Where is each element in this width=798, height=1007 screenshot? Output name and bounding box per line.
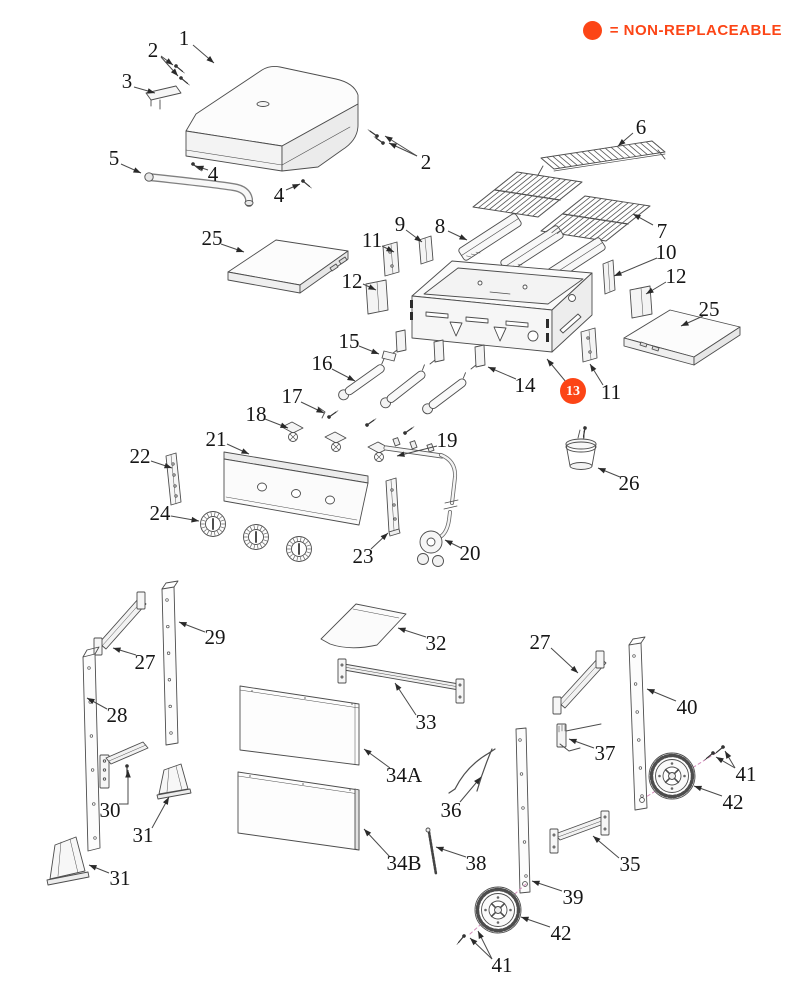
callout-20: 20 — [445, 540, 481, 565]
callout-28: 28 — [87, 698, 128, 727]
svg-text:21: 21 — [206, 427, 227, 451]
callout-26: 26 — [598, 468, 640, 495]
callout-32: 32 — [398, 628, 447, 655]
callout-9: 9 — [395, 212, 422, 242]
svg-text:3: 3 — [122, 69, 133, 93]
svg-text:41: 41 — [492, 953, 513, 977]
svg-text:42: 42 — [723, 790, 744, 814]
svg-text:1: 1 — [179, 26, 190, 50]
svg-text:38: 38 — [466, 851, 487, 875]
callout-19: 19 — [397, 428, 458, 457]
callout-31b: 31 — [89, 865, 131, 890]
svg-text:14: 14 — [515, 373, 537, 397]
callout-41a: 41 — [716, 751, 757, 786]
svg-text:35: 35 — [620, 852, 641, 876]
callout-16: 16 — [312, 351, 356, 381]
callout-14: 14 — [488, 367, 536, 397]
svg-text:31: 31 — [110, 866, 131, 890]
svg-text:4: 4 — [274, 183, 285, 207]
callout-27a: 27 — [113, 648, 156, 674]
callout-11a: 11 — [362, 228, 394, 252]
callout-11b: 11 — [590, 364, 621, 404]
svg-text:32: 32 — [426, 631, 447, 655]
svg-text:5: 5 — [109, 146, 120, 170]
svg-text:8: 8 — [435, 214, 446, 238]
legend: = NON-REPLACEABLE — [583, 21, 782, 40]
callout-2a: 2 — [148, 38, 178, 76]
svg-text:19: 19 — [437, 428, 458, 452]
svg-text:6: 6 — [636, 115, 647, 139]
svg-text:25: 25 — [202, 226, 223, 250]
callout-30: 30 — [100, 770, 131, 822]
callout-13: 13 — [547, 359, 586, 404]
callout-15: 15 — [339, 329, 380, 354]
callout-39: 39 — [532, 881, 584, 909]
callout-21: 21 — [206, 427, 250, 454]
svg-text:34A: 34A — [386, 763, 423, 787]
svg-text:28: 28 — [107, 703, 128, 727]
callout-7: 7 — [633, 214, 667, 243]
callout-25a: 25 — [202, 226, 245, 252]
svg-text:29: 29 — [205, 625, 226, 649]
callout-17: 17 — [282, 384, 325, 413]
svg-text:25: 25 — [699, 297, 720, 321]
callout-37: 37 — [569, 739, 616, 765]
callout-25b: 25 — [681, 297, 720, 326]
callout-12a: 12 — [342, 269, 377, 293]
svg-text:23: 23 — [353, 544, 374, 568]
svg-text:16: 16 — [312, 351, 333, 375]
svg-text:2: 2 — [148, 38, 159, 62]
callout-31a: 31 — [133, 797, 170, 847]
svg-text:15: 15 — [339, 329, 360, 353]
callout-2b: 2 — [385, 136, 431, 174]
svg-text:2: 2 — [421, 150, 432, 174]
exploded-parts-diagram: 1234452678910111212111314151617181920212… — [0, 0, 798, 1007]
svg-text:40: 40 — [677, 695, 698, 719]
callout-3: 3 — [122, 69, 155, 94]
svg-text:20: 20 — [460, 541, 481, 565]
svg-text:4: 4 — [208, 162, 219, 186]
callout-24: 24 — [150, 501, 200, 525]
callout-36: 36 — [441, 777, 482, 822]
callout-8: 8 — [435, 214, 467, 240]
callout-12b: 12 — [646, 264, 687, 294]
callout-22: 22 — [130, 444, 173, 468]
svg-text:33: 33 — [416, 710, 437, 734]
svg-text:27: 27 — [135, 650, 156, 674]
svg-text:24: 24 — [150, 501, 172, 525]
svg-text:34B: 34B — [386, 851, 421, 875]
non-replaceable-dot-icon — [583, 21, 602, 40]
svg-text:41: 41 — [736, 762, 757, 786]
callout-27b: 27 — [530, 630, 579, 673]
callout-35: 35 — [593, 836, 641, 876]
callout-layer: 1234452678910111212111314151617181920212… — [0, 0, 798, 1007]
callout-40: 40 — [647, 689, 698, 719]
callout-42b: 42 — [521, 917, 572, 945]
legend-text: = NON-REPLACEABLE — [610, 22, 782, 39]
callout-1: 1 — [179, 26, 214, 63]
svg-text:10: 10 — [656, 240, 677, 264]
svg-text:36: 36 — [441, 798, 462, 822]
svg-text:12: 12 — [342, 269, 363, 293]
callout-42a: 42 — [694, 786, 744, 814]
svg-text:30: 30 — [100, 798, 121, 822]
callout-23: 23 — [353, 533, 389, 568]
svg-text:42: 42 — [551, 921, 572, 945]
svg-text:12: 12 — [666, 264, 687, 288]
callout-38: 38 — [436, 847, 487, 875]
callout-34A: 34A — [364, 749, 423, 787]
svg-text:11: 11 — [601, 380, 621, 404]
svg-text:26: 26 — [619, 471, 640, 495]
callout-41b: 41 — [470, 931, 513, 977]
callout-29: 29 — [179, 622, 226, 649]
callout-4b: 4 — [274, 183, 300, 207]
svg-text:31: 31 — [133, 823, 154, 847]
callout-33: 33 — [395, 683, 437, 734]
svg-text:18: 18 — [246, 402, 267, 426]
svg-text:22: 22 — [130, 444, 151, 468]
callout-4a: 4 — [196, 162, 219, 186]
callout-5: 5 — [109, 146, 141, 173]
callout-6: 6 — [618, 115, 646, 146]
svg-text:37: 37 — [595, 741, 616, 765]
svg-text:39: 39 — [563, 885, 584, 909]
callout-34B: 34B — [364, 829, 422, 875]
svg-text:9: 9 — [395, 212, 406, 236]
svg-text:27: 27 — [530, 630, 551, 654]
svg-text:13: 13 — [566, 384, 580, 399]
svg-text:17: 17 — [282, 384, 303, 408]
svg-text:11: 11 — [362, 228, 382, 252]
